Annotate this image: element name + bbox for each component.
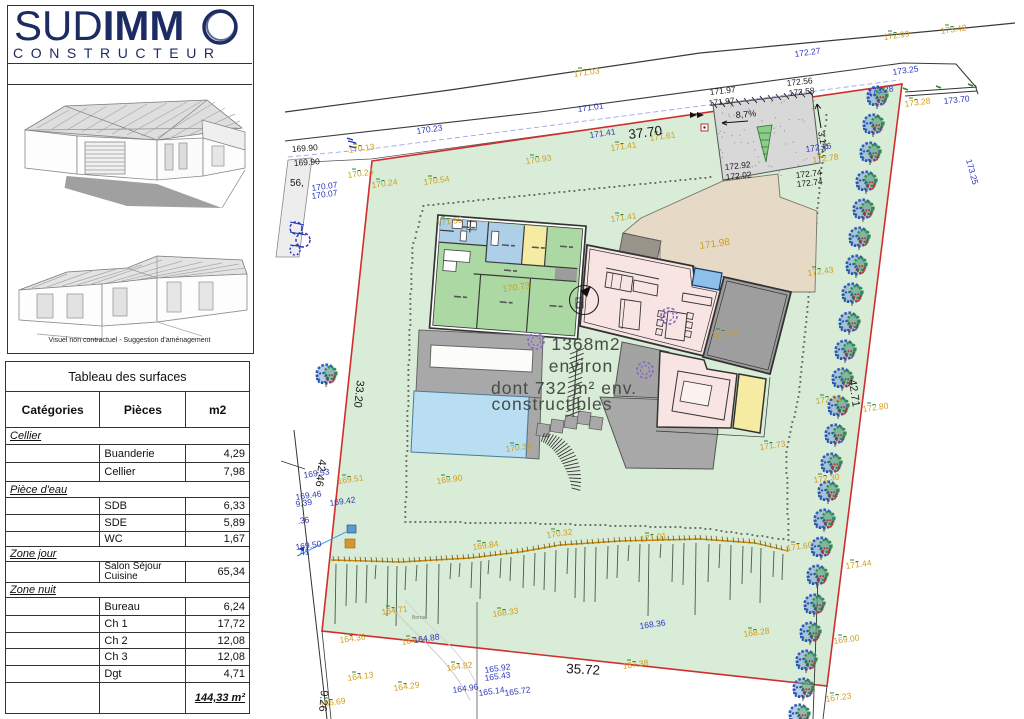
svg-text:172.27: 172.27 [794, 45, 821, 59]
svg-text:173.25: 173.25 [892, 63, 919, 77]
svg-text:173.42: 173.42 [940, 22, 967, 36]
svg-text:172.99: 172.99 [883, 28, 910, 42]
svg-text:169.00: 169.00 [833, 632, 860, 646]
svg-text:165.72: 165.72 [504, 684, 531, 698]
svg-text:56,: 56, [290, 178, 304, 189]
svg-text:1368m2: 1368m2 [551, 334, 620, 354]
svg-text:172.80: 172.80 [862, 400, 889, 414]
svg-text:165.14: 165.14 [478, 684, 505, 698]
svg-text:170.23: 170.23 [416, 122, 443, 136]
svg-text:169.50: 169.50 [295, 538, 322, 552]
svg-text:35.72: 35.72 [566, 661, 601, 678]
svg-text:8,7%: 8,7% [735, 108, 756, 120]
svg-text:9.39: 9.39 [295, 497, 313, 509]
svg-text:173.70: 173.70 [943, 93, 970, 106]
svg-text:171.03: 171.03 [573, 65, 600, 79]
svg-text:173.25: 173.25 [964, 158, 980, 186]
svg-text:171.01: 171.01 [577, 100, 604, 114]
svg-text:170.13: 170.13 [348, 141, 375, 155]
svg-text:42.46: 42.46 [313, 459, 328, 488]
svg-text:Borne: Borne [412, 615, 426, 621]
svg-text:167.23: 167.23 [825, 690, 852, 704]
svg-text:environ: environ [549, 356, 613, 376]
svg-text:164.29: 164.29 [393, 679, 420, 693]
svg-text:173.28: 173.28 [904, 95, 931, 109]
svg-text:171.44: 171.44 [845, 557, 872, 571]
svg-text:169.90: 169.90 [291, 142, 318, 154]
svg-text:164.96: 164.96 [452, 681, 479, 695]
svg-text:constructibles: constructibles [492, 394, 613, 414]
svg-text:9.26: 9.26 [316, 690, 330, 712]
svg-text:164.13: 164.13 [347, 669, 374, 683]
svg-text:169.90: 169.90 [293, 156, 320, 168]
svg-text:.36: .36 [297, 514, 310, 526]
